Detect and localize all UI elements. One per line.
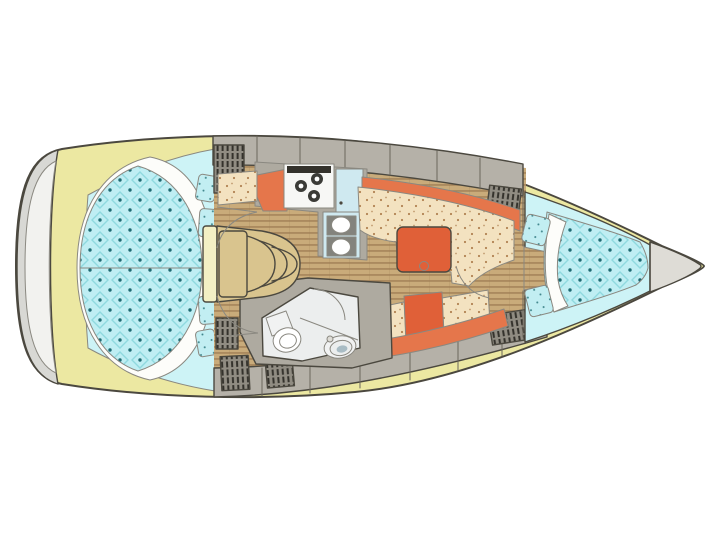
faucet [327, 336, 333, 342]
boat-floor-plan [0, 0, 720, 540]
steps-edge-strip [203, 226, 217, 302]
bow [650, 242, 701, 292]
dinette-table [397, 227, 451, 272]
under-steps-locker [216, 318, 238, 349]
anchor-locker [650, 242, 701, 292]
stove-control-panel [287, 166, 331, 173]
sink-bowl [332, 217, 351, 233]
galley-bench-cushion [218, 171, 257, 205]
boat-floor-plan-canvas [0, 0, 720, 540]
fridge-handle [339, 201, 342, 204]
sink-bowl [332, 239, 351, 255]
aft-starboard-locker [220, 355, 250, 390]
galley-cabinet-orange [257, 169, 287, 211]
